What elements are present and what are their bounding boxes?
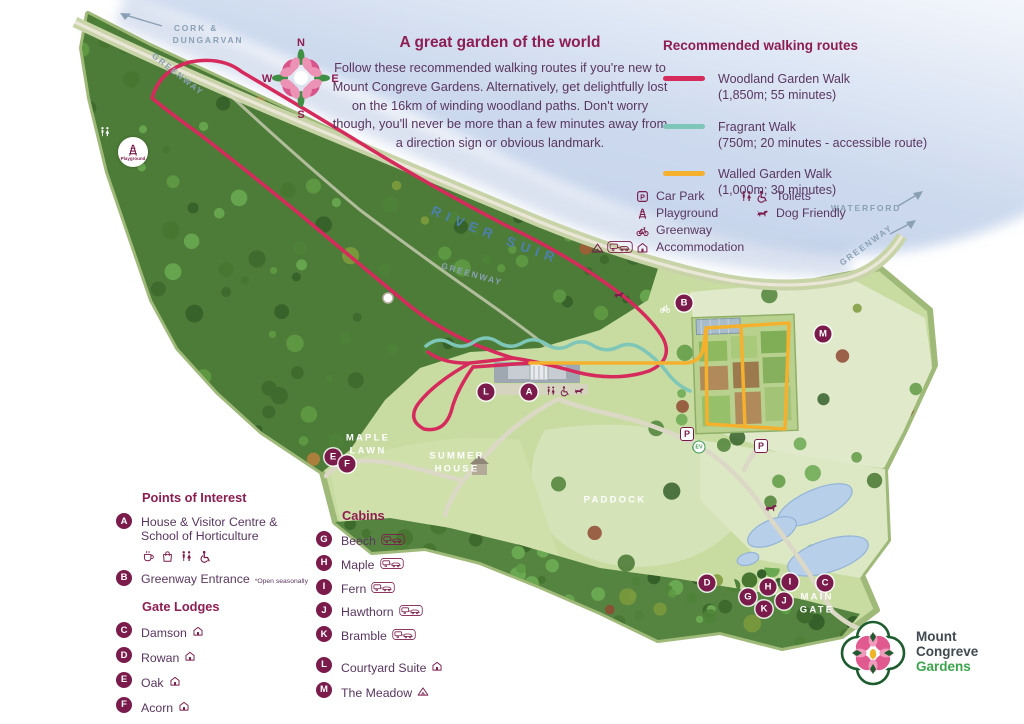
route-swatch	[663, 171, 705, 176]
toilets-icon	[180, 550, 193, 563]
logo-word-congreve: Congreve	[916, 645, 978, 660]
car-park-icon: P	[636, 190, 649, 203]
caravan-badge-icon	[371, 582, 395, 593]
marker-key-B: B	[116, 570, 132, 586]
list-item-label: Fern	[341, 579, 395, 597]
amenity-icons	[733, 190, 769, 203]
page-title: A great garden of the world	[330, 34, 670, 52]
caravan-badge-icon	[381, 534, 405, 545]
amenity-icons	[577, 241, 649, 254]
cabins-panel: Cabins GBeechHMapleIFernJHawthornKBrambl…	[316, 508, 506, 706]
list-item-label: The Meadow	[341, 682, 429, 701]
marker-key-F: F	[116, 697, 132, 713]
dog-icon	[756, 207, 769, 220]
compass-rose: N E S W	[256, 32, 346, 124]
wheelchair-icon	[199, 550, 212, 563]
amenity-legend-row: PCar Park	[577, 188, 744, 204]
lodge-icon	[192, 625, 204, 637]
icons-legend-right: ToiletsDog Friendly	[733, 188, 846, 222]
route-label: Fragrant Walk(750m; 20 minutes - accessi…	[718, 119, 927, 152]
compass-east-label: E	[331, 73, 338, 85]
caravan-badge-icon	[607, 241, 633, 253]
amenity-label: Toilets	[776, 189, 811, 203]
list-item-label: Courtyard Suite	[341, 657, 443, 676]
amenity-legend-row: Toilets	[733, 188, 846, 204]
amenity-label: Accommodation	[656, 240, 744, 254]
caravan-badge-icon	[399, 605, 423, 616]
logo-flower-icon	[836, 614, 910, 692]
compass-south-label: S	[297, 109, 304, 121]
intro-panel: A great garden of the world Follow these…	[330, 34, 670, 153]
compass-west-label: W	[262, 73, 273, 85]
cafe-icon	[142, 550, 155, 563]
route-legend-row: Fragrant Walk(750m; 20 minutes - accessi…	[663, 119, 963, 152]
list-item: EOak	[116, 672, 316, 691]
route-label: Woodland Garden Walk(1,850m; 55 minutes)	[718, 71, 850, 104]
compass-north-label: N	[297, 37, 305, 49]
list-item-label: Bramble	[341, 626, 416, 644]
lodge-icon	[184, 650, 196, 662]
marker-key-J: J	[316, 602, 332, 618]
marker-key-G: G	[316, 531, 332, 547]
poi-title: Points of Interest	[142, 490, 316, 505]
lodge-icon	[169, 675, 181, 687]
points-of-interest-panel: Points of Interest AHouse & Visitor Cent…	[116, 490, 316, 721]
marker-key-L: L	[316, 657, 332, 673]
list-item-label: Damson	[141, 622, 204, 641]
amenity-label: Dog Friendly	[776, 206, 846, 220]
amenity-label: Playground	[656, 206, 718, 220]
lodge-icon	[178, 700, 190, 712]
amenity-legend-row: Accommodation	[577, 239, 744, 255]
amenity-legend-row: Playground	[577, 205, 744, 221]
marker-key-I: I	[316, 579, 332, 595]
list-item-label: Oak	[141, 672, 181, 691]
amenity-icons	[733, 207, 769, 220]
list-item: DRowan	[116, 647, 316, 666]
seasonal-note: *Open seasonally	[255, 578, 308, 586]
list-item-label: House & Visitor Centre &School of Hortic…	[141, 513, 277, 544]
logo-word-gardens: Gardens	[916, 660, 978, 675]
svg-text:P: P	[640, 192, 645, 201]
wheelchair-icon	[756, 190, 769, 203]
compass-flower	[272, 49, 330, 107]
cabins-title: Cabins	[342, 508, 506, 523]
list-item: BGreenway Entrance*Open seasonally	[116, 570, 316, 587]
icons-legend-left: PCar ParkPlaygroundGreenwayAccommodation	[577, 188, 744, 256]
amenity-legend-row: Dog Friendly	[733, 205, 846, 221]
route-swatch	[663, 76, 705, 81]
route-swatch	[663, 124, 705, 129]
amenity-label: Greenway	[656, 223, 712, 237]
list-item: FAcorn	[116, 697, 316, 716]
list-item-label: Acorn	[141, 697, 190, 716]
shop-icon	[161, 550, 174, 563]
list-item-label: Hawthorn	[341, 602, 423, 620]
playground-icon	[636, 207, 649, 220]
greenway-icon	[636, 224, 649, 237]
list-item: AHouse & Visitor Centre &School of Horti…	[116, 513, 316, 544]
marker-key-D: D	[116, 647, 132, 663]
gazebo	[383, 293, 393, 303]
amenity-legend-row: Greenway	[577, 222, 744, 238]
list-item-label: Rowan	[141, 647, 196, 666]
list-item: JHawthorn	[316, 602, 506, 620]
amenity-icons	[577, 207, 649, 220]
list-item: CDamson	[116, 622, 316, 641]
list-item-label: Greenway Entrance*Open seasonally	[141, 570, 308, 587]
list-item: IFern	[316, 579, 506, 597]
list-item: MThe Meadow	[316, 682, 506, 701]
logo-word-mount: Mount	[916, 630, 978, 645]
garden-map-page: RIVER SUIR MAPLELAWNSUMMERHOUSEPADDOCKMA…	[0, 0, 1024, 724]
marker-key-K: K	[316, 626, 332, 642]
marker-key-A: A	[116, 513, 132, 529]
poi-amenity-icons	[142, 550, 316, 563]
main-house	[488, 362, 588, 395]
list-item: HMaple	[316, 555, 506, 573]
list-item: GBeech	[316, 531, 506, 549]
intro-body: Follow these recommended walking routes …	[330, 59, 670, 153]
tent-icon	[417, 685, 429, 697]
amenity-label: Car Park	[656, 189, 705, 203]
marker-key-E: E	[116, 672, 132, 688]
lodge-icon	[636, 241, 649, 254]
marker-key-C: C	[116, 622, 132, 638]
list-item: LCourtyard Suite	[316, 657, 506, 676]
gate-lodges-title: Gate Lodges	[142, 599, 316, 614]
marker-key-H: H	[316, 555, 332, 571]
toilets-icon	[740, 190, 753, 203]
routes-legend-title: Recommended walking routes	[663, 38, 963, 53]
lodge-icon	[431, 660, 443, 672]
amenity-icons	[577, 224, 649, 237]
list-item-label: Maple	[341, 555, 404, 573]
route-legend-row: Woodland Garden Walk(1,850m; 55 minutes)	[663, 71, 963, 104]
list-item: KBramble	[316, 626, 506, 644]
list-item-label: Beech	[341, 531, 405, 549]
brand-logo: Mount Congreve Gardens	[836, 608, 1016, 708]
amenity-icons: P	[577, 190, 649, 203]
marker-key-M: M	[316, 682, 332, 698]
caravan-badge-icon	[392, 629, 416, 640]
tent-icon	[591, 241, 604, 254]
caravan-badge-icon	[380, 558, 404, 569]
